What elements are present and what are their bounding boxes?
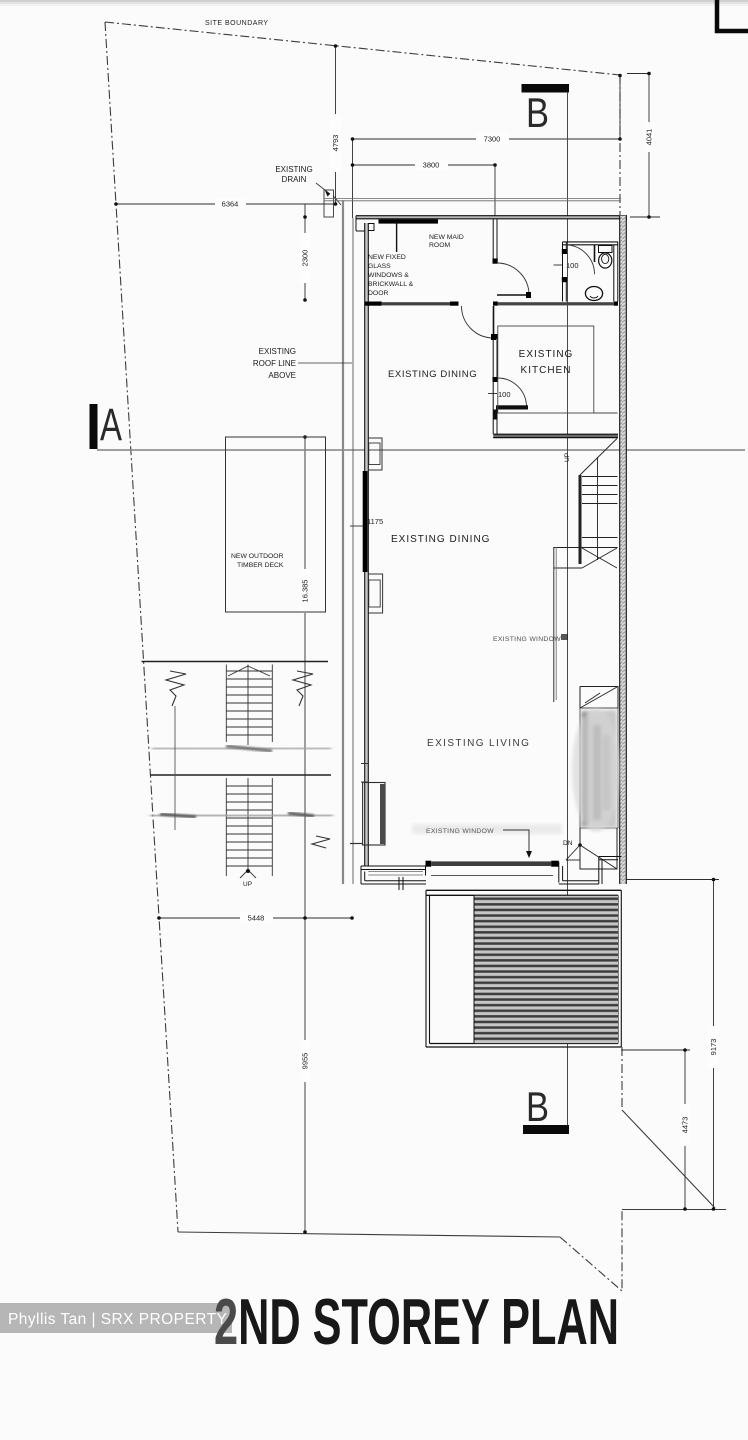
svg-text:Phyllis Tan | SRX PROPERTY: Phyllis Tan | SRX PROPERTY: [8, 1311, 227, 1328]
svg-text:4041: 4041: [645, 129, 654, 146]
svg-text:EXISTING: EXISTING: [275, 165, 312, 174]
svg-text:4473: 4473: [681, 1117, 690, 1134]
svg-text:3800: 3800: [423, 161, 440, 170]
svg-text:EXISTING: EXISTING: [519, 349, 574, 360]
svg-text:ROOF LINE: ROOF LINE: [253, 359, 296, 368]
svg-text:NEW MAID: NEW MAID: [429, 234, 464, 241]
svg-text:2300: 2300: [301, 250, 310, 267]
svg-text:ABOVE: ABOVE: [268, 371, 296, 380]
svg-text:UP: UP: [564, 453, 571, 462]
svg-text:9173: 9173: [709, 1039, 718, 1056]
svg-text:NEW OUTDOOR: NEW OUTDOOR: [231, 553, 284, 560]
svg-text:EXISTING LIVING: EXISTING LIVING: [427, 738, 530, 749]
svg-text:EXISTING WINDOW: EXISTING WINDOW: [426, 828, 494, 835]
svg-text:SITE BOUNDARY: SITE BOUNDARY: [205, 20, 269, 27]
svg-text:B: B: [526, 1083, 549, 1130]
svg-text:6364: 6364: [222, 200, 239, 209]
svg-text:ROOM: ROOM: [429, 242, 450, 249]
svg-text:1175: 1175: [367, 517, 383, 526]
svg-text:KITCHEN: KITCHEN: [521, 365, 572, 376]
svg-text:GLASS: GLASS: [368, 263, 391, 270]
svg-text:TIMBER DECK: TIMBER DECK: [237, 562, 284, 569]
svg-text:EXISTING DINING: EXISTING DINING: [391, 534, 490, 545]
svg-text:EXISTING WINDOW: EXISTING WINDOW: [493, 636, 561, 643]
svg-text:BRICKWALL &: BRICKWALL &: [368, 281, 414, 288]
svg-text:WINDOWS &: WINDOWS &: [368, 272, 409, 279]
svg-text:9955: 9955: [301, 1053, 310, 1070]
svg-text:2ND STOREY PLAN: 2ND STOREY PLAN: [214, 1285, 619, 1358]
svg-text:A: A: [100, 399, 122, 450]
svg-text:B: B: [526, 89, 549, 136]
svg-text:EXISTING: EXISTING: [259, 347, 296, 356]
svg-text:NEW FIXED: NEW FIXED: [368, 254, 406, 261]
svg-text:5448: 5448: [248, 914, 265, 923]
svg-text:7300: 7300: [484, 135, 501, 144]
svg-text:UP: UP: [243, 881, 252, 888]
svg-text:DN: DN: [563, 840, 573, 847]
svg-text:EXISTING DINING: EXISTING DINING: [388, 369, 477, 380]
svg-text:16.385: 16.385: [301, 580, 310, 603]
svg-text:100: 100: [498, 390, 511, 399]
svg-text:DRAIN: DRAIN: [282, 175, 307, 184]
svg-text:DOOR: DOOR: [368, 290, 388, 297]
svg-text:4793: 4793: [331, 135, 340, 152]
